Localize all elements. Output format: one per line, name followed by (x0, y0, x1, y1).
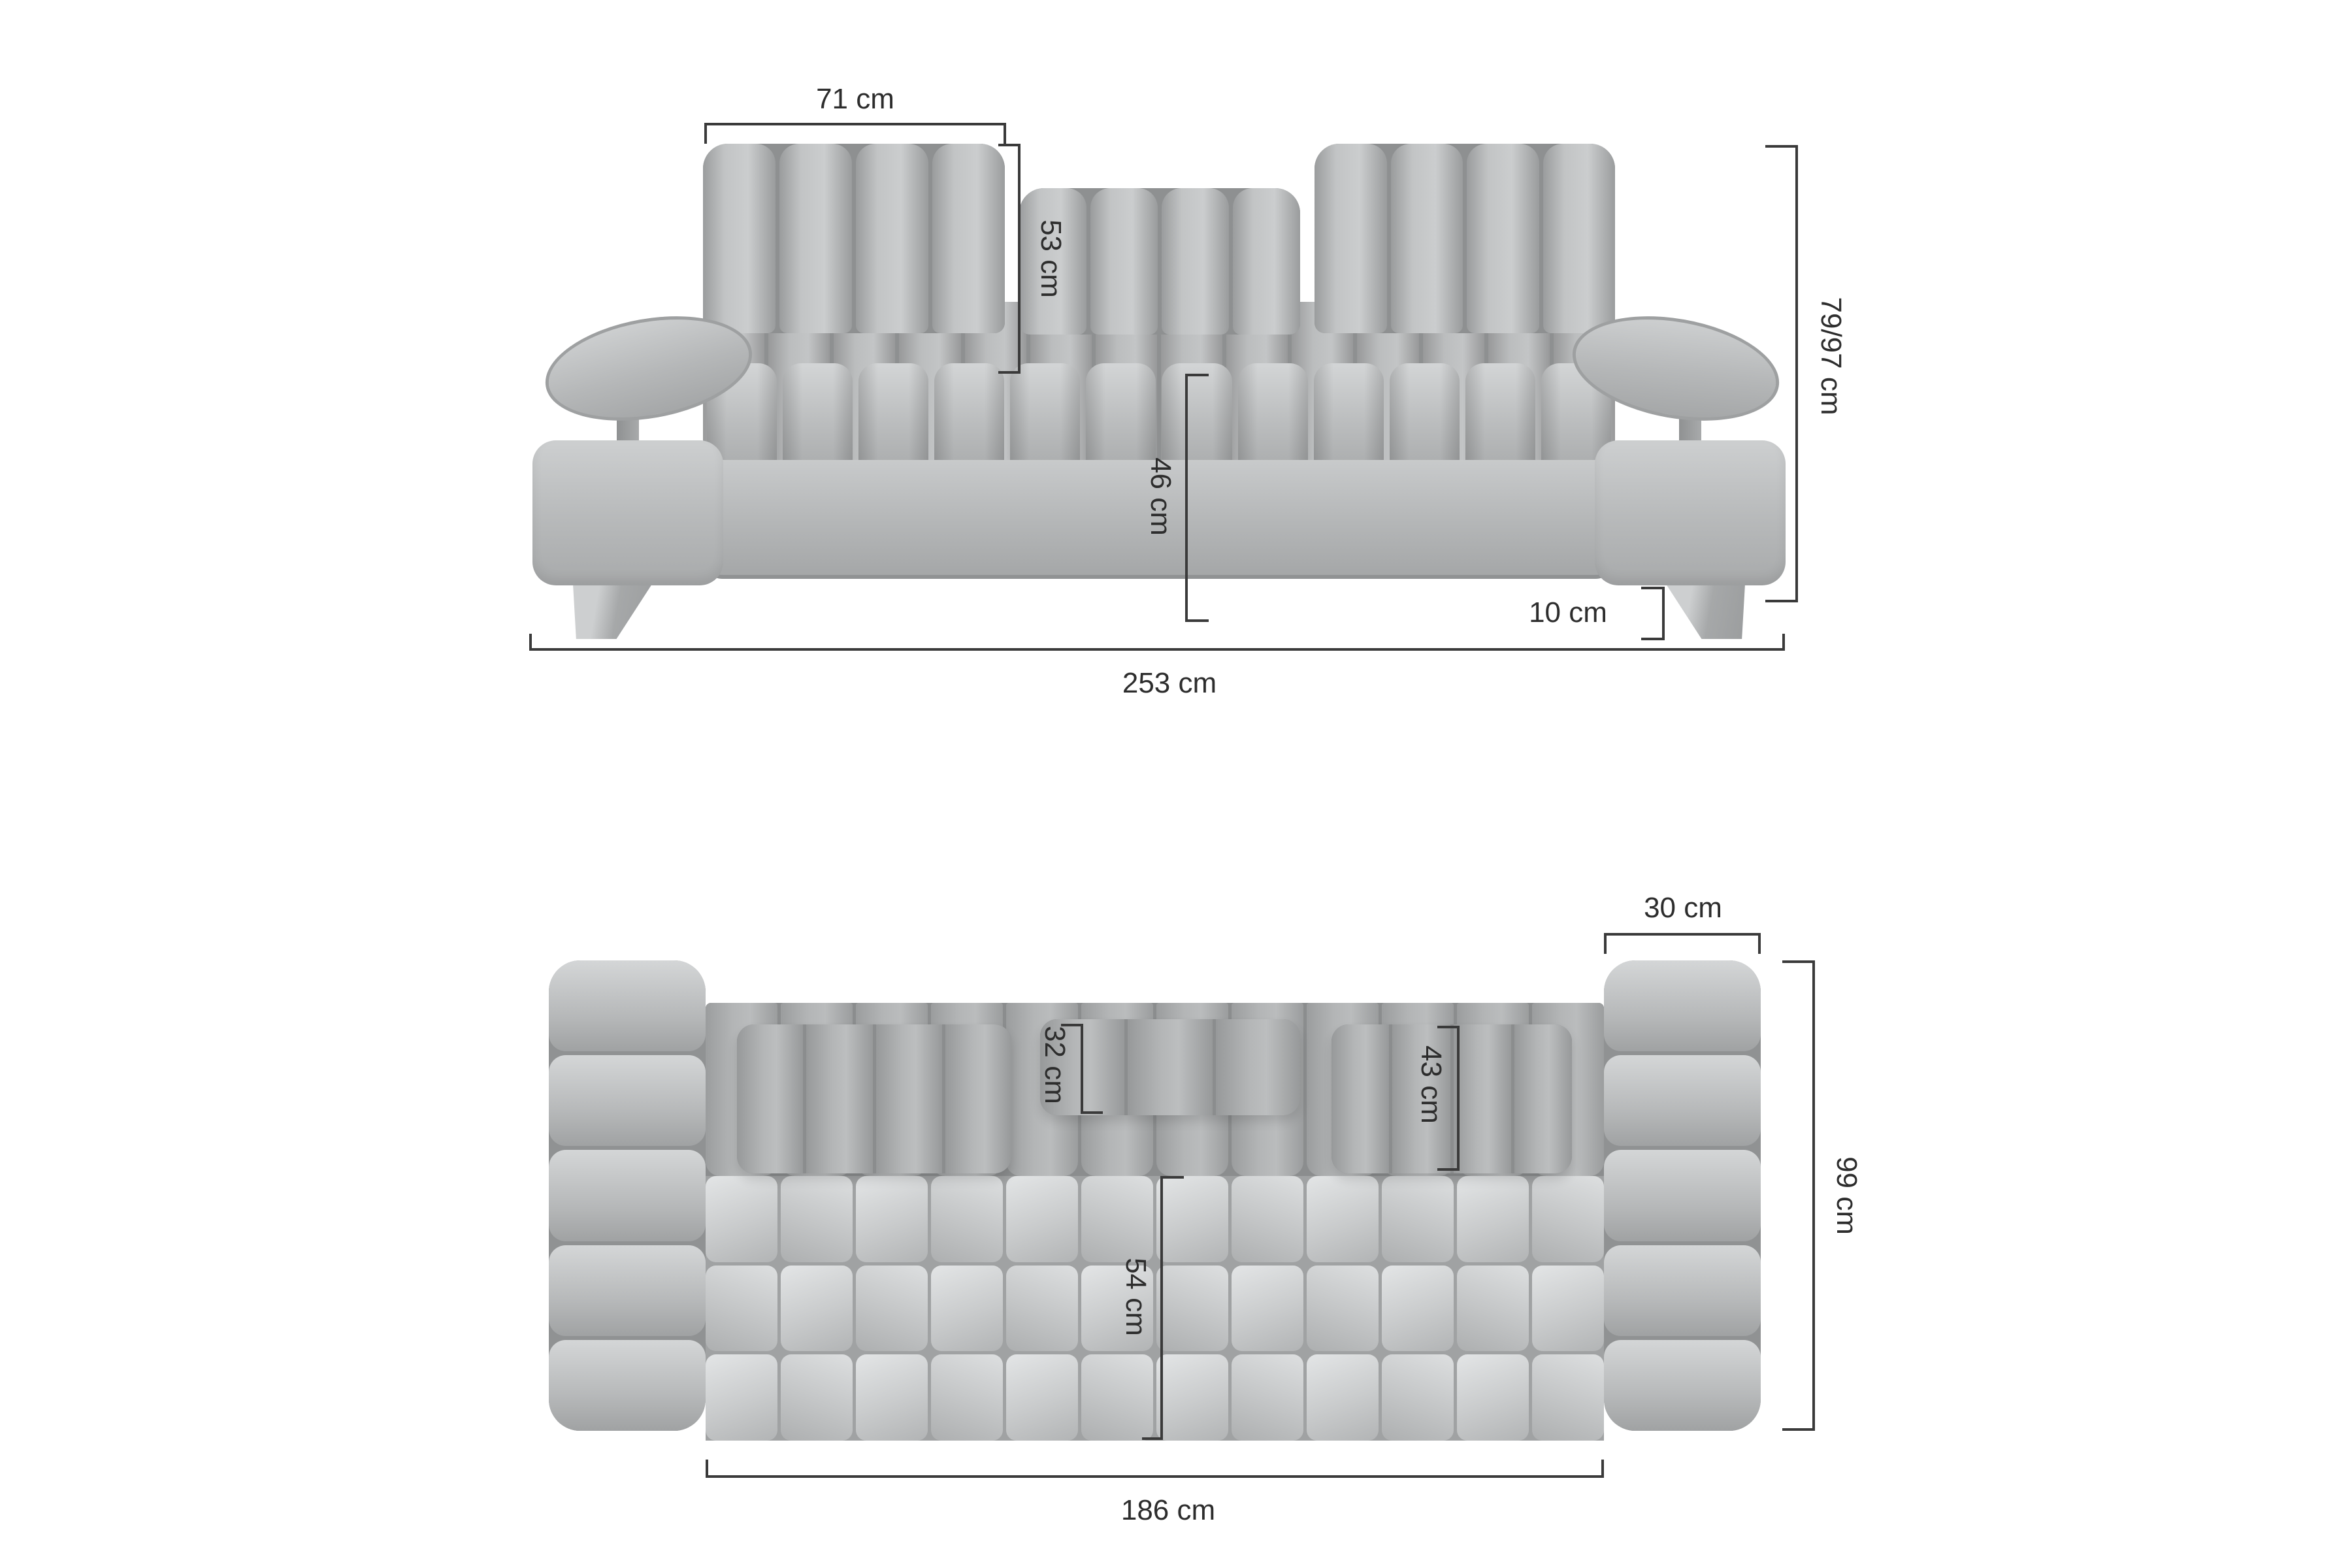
top-left-armrest-seg-1 (549, 960, 706, 1051)
seat-cell (1232, 1354, 1303, 1441)
front-headrest-left (703, 144, 1005, 333)
front-headrest-left-ch-2 (779, 144, 852, 333)
seat-cell (1081, 1176, 1153, 1262)
seat-cell (1457, 1176, 1529, 1262)
dim-tick (1082, 1111, 1103, 1114)
top-left-armrest-seg-4 (549, 1245, 706, 1336)
dim-tick (1437, 1168, 1458, 1171)
dim-line-seat-depth (1160, 1176, 1163, 1440)
dim-tick (706, 1460, 708, 1477)
seat-cell (706, 1354, 777, 1441)
front-headrest-right (1315, 144, 1615, 333)
front-seat-cushions-ch-4 (934, 363, 1004, 466)
dim-tick (1782, 960, 1814, 963)
top-left-armrest (549, 960, 706, 1431)
seat-cell (1457, 1266, 1529, 1352)
seat-cell (781, 1176, 853, 1262)
seat-cell (1457, 1354, 1529, 1441)
front-seat-cushions-ch-3 (858, 363, 928, 466)
seat-cell (1006, 1176, 1078, 1262)
dim-tick (998, 144, 1021, 146)
top-right-armrest-seg-2 (1604, 1055, 1761, 1146)
seat-cell (706, 1266, 777, 1352)
top-left-armrest-seg-2 (549, 1055, 706, 1146)
front-headrest-right-ch-4 (1543, 144, 1616, 333)
top-headrest-middle-ch-2 (1128, 1019, 1212, 1115)
sofa-dimensions-diagram: 71 cm 53 cm 79/97 cm 46 cm 10 cm 253 cm (0, 0, 2352, 1568)
top-headrest-left-ch-3 (876, 1024, 942, 1173)
front-right-leg (1666, 584, 1745, 639)
dim-tick (1601, 1460, 1604, 1477)
seat-cell (1156, 1266, 1228, 1352)
dim-tick (998, 371, 1021, 374)
front-headrest-right-ch-1 (1315, 144, 1387, 333)
dim-tick (529, 634, 532, 651)
seat-cell (856, 1354, 928, 1441)
seat-cell (931, 1354, 1003, 1441)
top-headrest-right (1331, 1024, 1572, 1173)
dim-label-seat-width: 186 cm (1121, 1496, 1215, 1525)
dim-tick (1641, 638, 1663, 640)
top-left-armrest-seg-5 (549, 1340, 706, 1431)
front-left-leg (573, 584, 652, 639)
front-seat-cushions-ch-9 (1314, 363, 1384, 466)
seat-cell (1532, 1266, 1604, 1352)
seat-cell (706, 1176, 777, 1262)
front-headrest-left-ch-3 (856, 144, 928, 333)
seat-cell (856, 1176, 928, 1262)
top-headrest-left-ch-4 (945, 1024, 1011, 1173)
seat-cell (1307, 1176, 1379, 1262)
seat-cell (781, 1266, 853, 1352)
dim-tick (1004, 125, 1006, 144)
dim-tick (1758, 936, 1761, 954)
dim-tick (704, 125, 707, 144)
dim-label-headrest-depth: 32 cm (1040, 1026, 1069, 1104)
dim-label-backrest-depth: 43 cm (1416, 1045, 1445, 1124)
dim-tick (1765, 145, 1797, 148)
seat-cell (931, 1266, 1003, 1352)
seat-cell (1006, 1354, 1078, 1441)
top-right-armrest-seg-1 (1604, 960, 1761, 1051)
dim-line-overall-depth (1812, 960, 1815, 1431)
top-right-armrest (1604, 960, 1761, 1431)
top-right-armrest-seg-4 (1604, 1245, 1761, 1336)
seat-cell (1307, 1354, 1379, 1441)
front-headrest-left-ch-4 (932, 144, 1005, 333)
top-right-armrest-seg-3 (1604, 1150, 1761, 1241)
dim-label-headrest-height: 53 cm (1036, 220, 1065, 298)
top-seat (706, 1176, 1604, 1441)
dim-label-headrest-width: 71 cm (816, 85, 894, 114)
seat-cell (1156, 1354, 1228, 1441)
seat-cell (931, 1176, 1003, 1262)
seat-cell (1156, 1176, 1228, 1262)
dim-tick (1782, 634, 1785, 651)
seat-cell (781, 1354, 853, 1441)
dim-line-headrest-width (704, 123, 1006, 125)
front-headrest-middle-ch-2 (1090, 188, 1158, 335)
dim-tick (1765, 600, 1797, 602)
dim-line-overall-height (1795, 145, 1798, 602)
dim-label-overall-width: 253 cm (1122, 669, 1217, 698)
front-seat-cushions-ch-7 (1162, 363, 1232, 466)
seat-cell (1307, 1266, 1379, 1352)
dim-tick (1188, 619, 1209, 622)
front-left-armrest-base (532, 440, 723, 585)
front-headrest-middle-ch-3 (1162, 188, 1229, 335)
dim-line-seat-height (1185, 374, 1188, 622)
front-right-armrest-base (1595, 440, 1786, 585)
top-headrest-right-ch-4 (1514, 1024, 1572, 1173)
front-seat-cushions-ch-11 (1465, 363, 1535, 466)
dim-tick (1188, 374, 1209, 376)
dim-line-overall-width (529, 648, 1785, 651)
front-seat-cushions (707, 363, 1611, 466)
top-headrest-left-ch-1 (737, 1024, 803, 1173)
front-seat-cushions-ch-5 (1010, 363, 1080, 466)
dim-label-leg-height: 10 cm (1529, 598, 1607, 627)
dim-tick (1604, 936, 1607, 954)
seat-cell (1232, 1266, 1303, 1352)
front-headrest-middle-ch-4 (1233, 188, 1300, 335)
front-seat-cushions-ch-10 (1390, 363, 1460, 466)
dim-label-overall-depth: 99 cm (1832, 1156, 1861, 1235)
seat-cell (856, 1266, 928, 1352)
top-right-armrest-seg-5 (1604, 1340, 1761, 1431)
seat-cell (1006, 1266, 1078, 1352)
seat-cell (1382, 1354, 1454, 1441)
dim-label-seat-height: 46 cm (1146, 457, 1175, 536)
dim-line-headrest-depth (1081, 1024, 1083, 1114)
dim-line-seat-width (706, 1475, 1604, 1478)
front-headrest-right-ch-3 (1467, 144, 1539, 333)
front-seat-cushions-ch-2 (783, 363, 853, 466)
dim-label-armrest-width: 30 cm (1644, 894, 1722, 923)
dim-label-overall-height: 79/97 cm (1816, 297, 1845, 416)
top-headrest-right-ch-3 (1454, 1024, 1511, 1173)
top-headrest-middle (1040, 1019, 1300, 1115)
front-headrest-left-ch-1 (703, 144, 776, 333)
front-headrest-right-ch-2 (1391, 144, 1463, 333)
top-headrest-right-ch-1 (1331, 1024, 1389, 1173)
dim-tick (1641, 587, 1663, 589)
top-main-body (706, 1003, 1604, 1441)
top-headrest-middle-ch-3 (1216, 1019, 1300, 1115)
dim-line-backrest-depth (1457, 1026, 1460, 1171)
dim-tick (1163, 1176, 1184, 1179)
dim-line-leg-height (1662, 587, 1665, 640)
dim-line-headrest-height (1018, 144, 1021, 374)
front-seat-cushions-ch-6 (1086, 363, 1156, 466)
seat-cell (1232, 1176, 1303, 1262)
top-headrest-left (737, 1024, 1011, 1173)
top-headrest-left-ch-2 (806, 1024, 872, 1173)
seat-cell (1081, 1354, 1153, 1441)
seat-cell (1382, 1176, 1454, 1262)
dim-line-armrest-width (1604, 933, 1761, 936)
dim-tick (1437, 1026, 1458, 1028)
seat-cell (1532, 1354, 1604, 1441)
dim-tick (1782, 1428, 1814, 1431)
front-seat-cushions-ch-8 (1238, 363, 1308, 466)
top-left-armrest-seg-3 (549, 1150, 706, 1241)
dim-tick (1142, 1437, 1163, 1440)
seat-cell (1382, 1266, 1454, 1352)
dim-label-seat-depth: 54 cm (1121, 1258, 1150, 1336)
seat-cell (1532, 1176, 1604, 1262)
